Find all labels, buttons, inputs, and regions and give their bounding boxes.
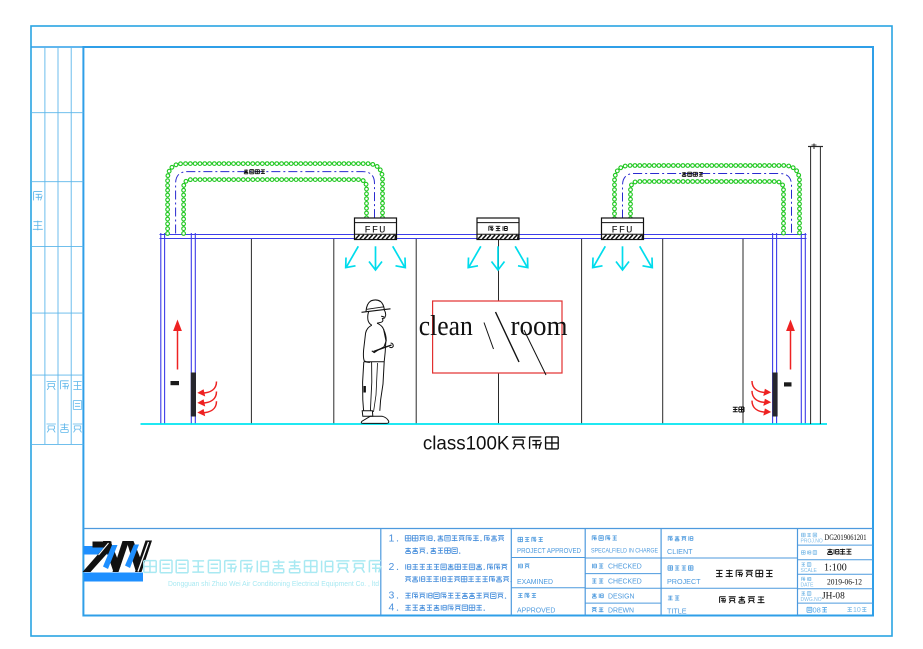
svg-text:TITLE: TITLE	[667, 607, 687, 616]
svg-text:room: room	[511, 310, 568, 342]
svg-text:clean: clean	[419, 310, 473, 342]
svg-text:1:100: 1:100	[824, 563, 847, 574]
svg-text:FFU: FFU	[612, 224, 634, 236]
svg-text:DESIGN: DESIGN	[608, 593, 634, 600]
svg-text:08: 08	[813, 606, 821, 615]
svg-text:PROJECT APPROVED: PROJECT APPROVED	[517, 548, 581, 555]
svg-text:SPECALFIELD IN CHARGE: SPECALFIELD IN CHARGE	[591, 548, 658, 555]
svg-text:DATE: DATE	[801, 583, 815, 589]
svg-text:PROJ.NO: PROJ.NO	[801, 539, 823, 545]
svg-text:JH-08: JH-08	[822, 592, 845, 602]
svg-text:DREWN: DREWN	[608, 607, 634, 614]
svg-text:2: 2	[389, 561, 395, 573]
svg-text:DWG.NO: DWG.NO	[801, 597, 822, 603]
svg-text:1: 1	[389, 533, 395, 545]
svg-text:4: 4	[389, 602, 395, 614]
svg-text:APPROVED: APPROVED	[517, 608, 555, 615]
svg-text:CHECKED: CHECKED	[608, 564, 642, 571]
svg-text:3: 3	[389, 590, 395, 602]
svg-text:SCALE: SCALE	[801, 568, 818, 574]
svg-text:Dongguan shi Zhuo Wei Air Cond: Dongguan shi Zhuo Wei Air Conditioning E…	[168, 579, 379, 588]
svg-text:CHECKED: CHECKED	[608, 579, 642, 586]
svg-text:EXAMINED: EXAMINED	[517, 579, 553, 586]
svg-text:PROJECT: PROJECT	[667, 577, 701, 586]
svg-text:FFU: FFU	[365, 224, 387, 236]
svg-text:class100K: class100K	[423, 434, 510, 455]
svg-text:DG2019061201: DG2019061201	[825, 533, 867, 542]
svg-text:2019-06-12: 2019-06-12	[827, 578, 862, 587]
svg-text:10: 10	[853, 607, 861, 614]
svg-text:CLIENT: CLIENT	[667, 547, 693, 556]
